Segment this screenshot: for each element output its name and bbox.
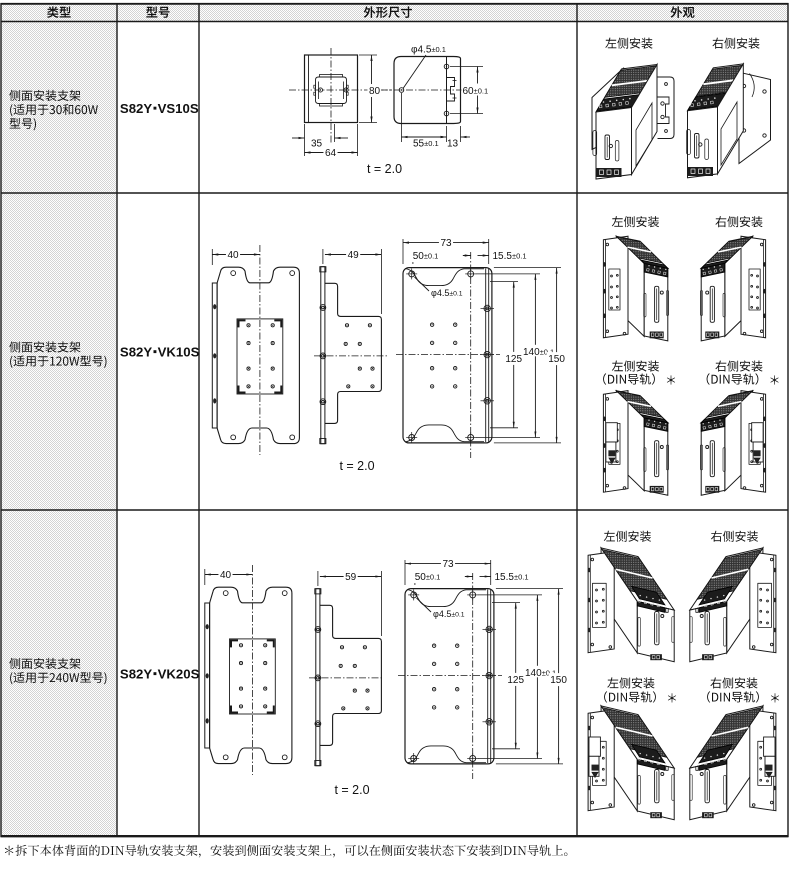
svg-text:40: 40 [227,250,239,261]
svg-text:150: 150 [548,354,565,365]
svg-text:59: 59 [345,572,357,583]
svg-text:50±0.1: 50±0.1 [413,251,439,262]
svg-text:60±0.1: 60±0.1 [463,86,489,97]
svg-text:125: 125 [507,675,524,686]
svg-text:50±0.1: 50±0.1 [415,572,441,583]
svg-text:49: 49 [348,250,360,261]
svg-text:55±0.1: 55±0.1 [413,139,439,150]
svg-text:VK20S: VK20S [158,667,200,682]
svg-text:125: 125 [505,354,522,365]
svg-text:64: 64 [325,148,337,159]
svg-text:73: 73 [442,559,454,570]
svg-text:40: 40 [220,570,232,581]
svg-text:t = 2.0: t = 2.0 [339,459,374,473]
svg-text:73: 73 [440,238,452,249]
svg-text:t = 2.0: t = 2.0 [367,162,402,176]
svg-text:150: 150 [550,675,567,686]
svg-text:φ4.5±0.1: φ4.5±0.1 [411,45,446,56]
svg-text:S82Y: S82Y [120,667,152,682]
svg-text:13: 13 [447,139,459,150]
svg-text:35: 35 [311,139,323,150]
svg-text:15.5±0.1: 15.5±0.1 [495,572,529,583]
svg-text:15.5±0.1: 15.5±0.1 [493,251,527,262]
svg-text:VK10S: VK10S [158,345,200,360]
svg-text:S82Y: S82Y [120,101,152,116]
svg-text:80: 80 [369,86,381,97]
svg-text:S82Y: S82Y [120,345,152,360]
svg-text:t = 2.0: t = 2.0 [334,783,369,797]
svg-text:VS10S: VS10S [158,101,199,116]
